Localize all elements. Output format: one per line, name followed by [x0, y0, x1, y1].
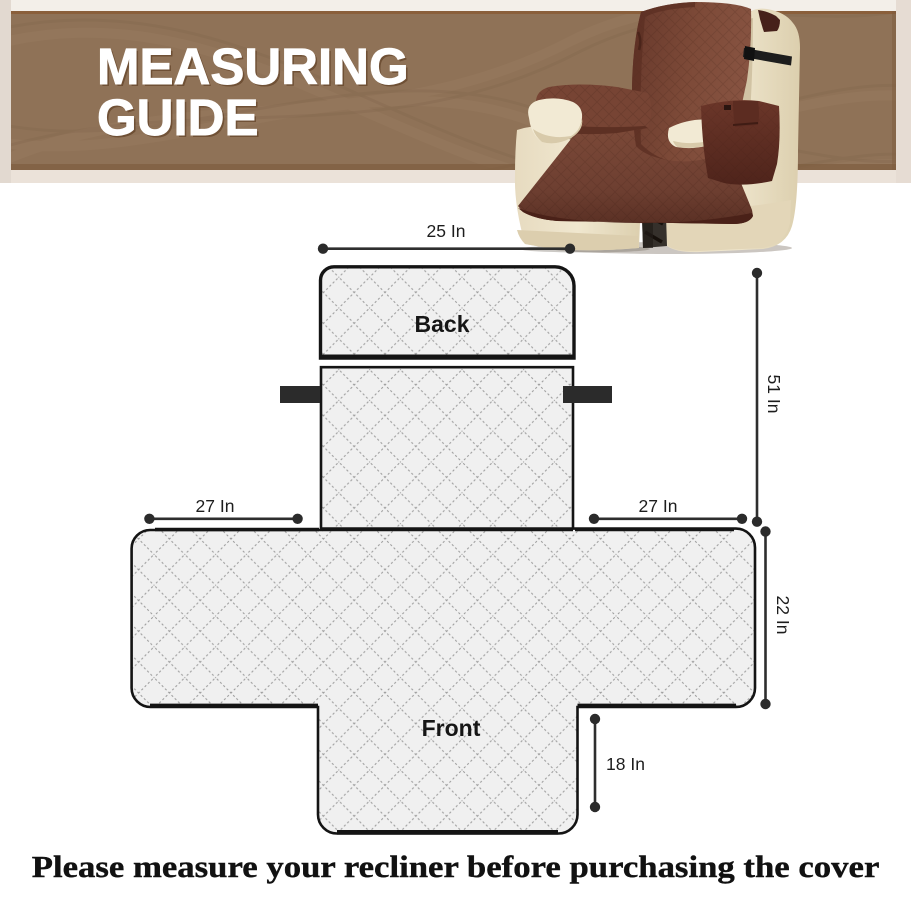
svg-text:22 In: 22 In	[773, 596, 793, 635]
svg-text:18 In: 18 In	[606, 754, 645, 774]
svg-text:51 In: 51 In	[764, 375, 784, 414]
svg-text:Front: Front	[422, 715, 481, 741]
svg-text:27 In: 27 In	[196, 496, 235, 516]
svg-text:27 In: 27 In	[639, 496, 678, 516]
svg-text:25 In: 25 In	[427, 221, 466, 241]
svg-text:Back: Back	[415, 311, 470, 337]
